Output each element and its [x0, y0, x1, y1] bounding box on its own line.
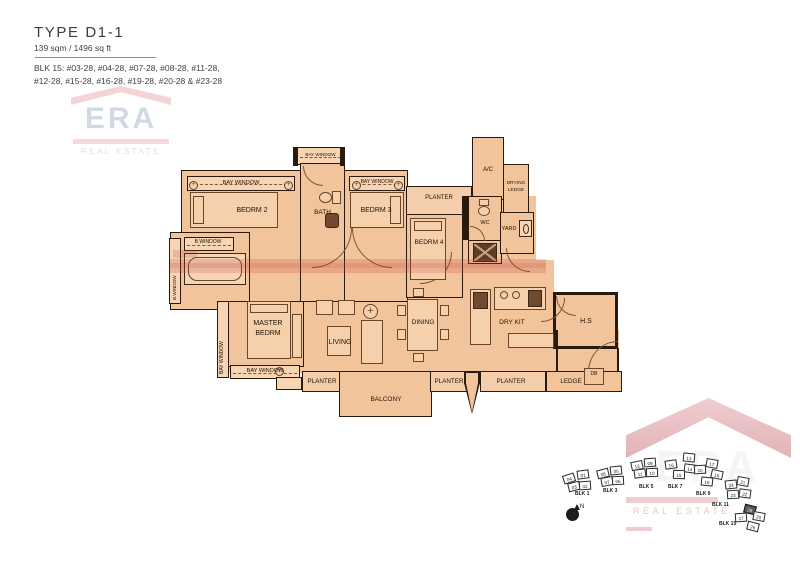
site-block-label: BLK 5: [639, 484, 653, 490]
site-unit-20: 20: [694, 465, 707, 475]
site-unit-13: 13: [683, 452, 696, 462]
site-unit-26: 26: [746, 521, 760, 533]
site-unit-09: 09: [644, 458, 657, 468]
site-unit-11: 11: [633, 468, 646, 479]
site-unit-10: 10: [646, 468, 658, 477]
site-unit-06: 06: [612, 476, 624, 486]
north-label: N: [580, 504, 584, 511]
site-unit-01: 01: [576, 469, 589, 480]
site-unit-05: 05: [610, 465, 623, 475]
site-unit-25: 25: [752, 511, 765, 522]
site-unit-02: 02: [579, 481, 592, 491]
north-arrow-icon: [566, 508, 579, 521]
site-block-label: BLK 1: [575, 491, 589, 497]
site-unit-22: 22: [738, 488, 751, 499]
site-unit-19: 19: [701, 476, 714, 486]
site-unit-17: 17: [705, 458, 718, 469]
site-unit-23: 23: [727, 490, 739, 500]
site-unit-15: 15: [673, 470, 685, 479]
site-block-label: BLK 9: [696, 491, 710, 497]
site-plan: N 04010302BLK 108050706BLK 312091110BLK …: [0, 0, 800, 565]
site-block-label: BLK 15: [719, 521, 736, 527]
site-block-label: BLK 3: [603, 488, 617, 494]
site-block-label: BLK 11: [712, 502, 729, 508]
floorplan-page: TYPE D1-1 139 sqm / 1496 sq ft BLK 15: #…: [0, 0, 800, 565]
site-unit-16: 16: [664, 459, 677, 470]
site-unit-27: 27: [735, 513, 748, 523]
site-unit-21: 21: [736, 476, 749, 487]
site-block-label: BLK 7: [668, 484, 682, 490]
